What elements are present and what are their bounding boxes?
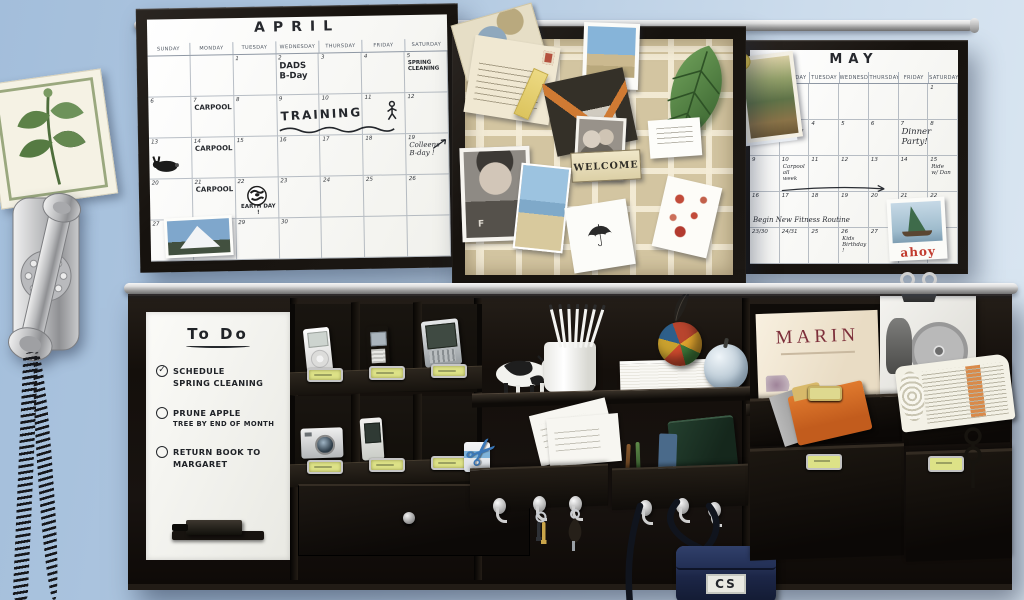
date-number: 5 xyxy=(839,120,868,127)
calendar-cell: 13 xyxy=(869,156,899,192)
key-fob xyxy=(564,508,586,554)
charging-row-top xyxy=(290,304,482,392)
glass-apple xyxy=(704,344,748,390)
date-number: 14 xyxy=(899,156,928,163)
date-number: 20 xyxy=(150,179,192,187)
calendar-cell: 8 xyxy=(928,120,958,156)
weekday-label: THURSDAY xyxy=(319,40,362,53)
slot-divider xyxy=(351,301,360,372)
date-number: 20 xyxy=(869,192,898,199)
calendar-cell: 4 xyxy=(362,52,406,94)
date-number xyxy=(365,216,407,218)
date-number xyxy=(809,84,838,85)
calendar-cell: 5 xyxy=(839,120,869,156)
label-plate xyxy=(431,364,467,378)
date-number: 8 xyxy=(928,120,957,127)
date-number: 23 xyxy=(278,177,320,185)
pinned-sailboat-postcard: ahoy xyxy=(886,197,947,262)
calendar-cell: 15 xyxy=(928,156,958,192)
calendar-cell: 6 xyxy=(148,97,192,139)
slot-divider xyxy=(351,393,360,464)
pda-phone xyxy=(421,318,463,368)
calendar-cell: 4 xyxy=(809,120,839,156)
checkbox-circle: ✓ xyxy=(156,365,168,377)
weekday-label: SATURDAY xyxy=(929,72,958,83)
may-calendar-face: MAY SUNDAYMONDAYTUESDAYWEDNESDAYTHURSDAY… xyxy=(750,50,958,264)
brass-label-plate xyxy=(808,386,842,401)
postcard-image xyxy=(891,201,943,244)
paper-stack xyxy=(620,359,717,392)
april-calendar-board: APRIL SUNDAYMONDAYTUESDAYWEDNESDAYTHURSD… xyxy=(136,3,463,273)
date-number: 23/30 xyxy=(750,228,779,235)
todo-item: ✓SCHEDULESPRING CLEANING xyxy=(156,365,284,390)
date-number: 6 xyxy=(869,120,898,127)
slot-divider xyxy=(413,393,422,464)
display-shelf xyxy=(480,298,748,404)
calendar-cell: 12 xyxy=(405,92,449,134)
pinned-umbrella-card: ☂ xyxy=(564,199,636,274)
april-title: APRIL xyxy=(147,16,447,37)
calendar-cell: 18 xyxy=(363,134,407,176)
date-number: 12 xyxy=(405,92,447,100)
calendar-cell: 30 xyxy=(279,218,323,260)
calendar-cell xyxy=(322,217,366,259)
date-number: 16 xyxy=(750,192,779,199)
calendar-cell: 3 xyxy=(319,53,363,95)
calendar-cell: 14 xyxy=(899,156,929,192)
calendar-cell: 17 xyxy=(780,192,810,228)
date-number: 13 xyxy=(149,138,191,146)
slot-divider xyxy=(413,301,422,372)
date-number: 9 xyxy=(277,95,319,103)
ribbon-pinboard: WELCOMEF☂ xyxy=(452,26,746,288)
sailboat-caption: ahoy xyxy=(889,243,948,260)
todo-text: RETURN BOOK TO xyxy=(173,446,284,458)
calendar-cell: 16 xyxy=(750,192,780,228)
whiteboard-eraser xyxy=(186,520,242,535)
date-number: 15 xyxy=(928,156,957,163)
calendar-cell: 15 xyxy=(235,136,279,178)
pinned-kid-art xyxy=(652,176,723,259)
date-number: 30 xyxy=(279,218,321,226)
date-number xyxy=(148,56,190,58)
envelope xyxy=(546,413,622,467)
date-number: 26 xyxy=(407,174,449,182)
todo-underline xyxy=(186,344,250,348)
date-number: 17 xyxy=(780,192,809,199)
date-number: 24/31 xyxy=(780,228,809,235)
pinned-art-postcard xyxy=(737,51,803,143)
weekday-label: SUNDAY xyxy=(147,43,190,56)
welcome-sign: WELCOME xyxy=(570,149,641,183)
date-number: 18 xyxy=(809,192,838,199)
key-ring xyxy=(528,510,554,552)
postcard-image xyxy=(167,218,231,255)
middle-hanging-rail xyxy=(124,283,1018,294)
label-plate xyxy=(928,456,964,472)
calendar-cell: 22 xyxy=(235,177,279,219)
pinboard-face: WELCOMEF☂ xyxy=(465,39,733,275)
calendar-cell: 9 xyxy=(277,95,321,137)
pinned-letter-card xyxy=(463,35,560,125)
date-number xyxy=(408,215,450,217)
vintage-wall-telephone xyxy=(0,188,98,368)
date-number: 25 xyxy=(809,228,838,235)
calendar-cell: 10 xyxy=(320,94,364,136)
todo-list: ✓SCHEDULESPRING CLEANINGPRUNE APPLETREE … xyxy=(146,365,290,471)
date-number: 26 xyxy=(839,228,868,235)
pinned-business-card xyxy=(648,117,703,159)
date-number xyxy=(899,84,928,85)
calendar-cell: 16 xyxy=(278,136,322,178)
checkbox-circle xyxy=(156,407,168,419)
calendar-cell: 25 xyxy=(809,228,839,264)
date-number: 9 xyxy=(750,156,779,163)
woven-ball xyxy=(658,322,702,366)
weekday-label: THURSDAY xyxy=(869,72,899,83)
calendar-cell: 2 xyxy=(276,54,320,96)
pinned-beach-postcard xyxy=(513,163,572,254)
calendar-cell: 23/30 xyxy=(750,228,780,264)
todo-title: To Do xyxy=(146,325,290,343)
calendar-cell xyxy=(899,84,929,120)
weekday-label: TUESDAY xyxy=(810,72,840,83)
calendar-cell: 8 xyxy=(234,95,278,137)
slider-phone xyxy=(360,417,385,460)
flip-phone xyxy=(366,325,390,368)
date-number: 6 xyxy=(148,97,190,105)
wall-organizer-unit: To Do ✓SCHEDULESPRING CLEANINGPRUNE APPL… xyxy=(128,294,1012,590)
label-plate xyxy=(369,458,405,472)
date-number: 4 xyxy=(362,52,404,60)
pencils xyxy=(550,300,600,348)
date-number: 29 xyxy=(236,218,278,226)
april-calendar-face: APRIL SUNDAYMONDAYTUESDAYWEDNESDAYTHURSD… xyxy=(147,14,451,261)
calendar-cell: 20 xyxy=(150,179,194,221)
weekday-label: WEDNESDAY xyxy=(276,41,319,54)
date-number: 4 xyxy=(809,120,838,127)
checkbox-circle xyxy=(156,446,168,458)
calendar-cell: 21 xyxy=(193,178,237,220)
pinned-mountain-postcard xyxy=(164,215,234,259)
date-number: 15 xyxy=(235,136,277,144)
label-plate xyxy=(307,460,343,474)
date-number: 11 xyxy=(363,93,405,101)
todo-whiteboard: To Do ✓SCHEDULESPRING CLEANINGPRUNE APPL… xyxy=(146,312,290,560)
telephone-cord xyxy=(29,352,61,600)
rolled-newspaper xyxy=(894,353,1015,432)
calendar-cell: 18 xyxy=(809,192,839,228)
date-number: 1 xyxy=(233,54,275,62)
date-number: 17 xyxy=(320,135,362,143)
weekday-label: MONDAY xyxy=(190,42,233,55)
todo-item: RETURN BOOK TOMARGARET xyxy=(156,446,284,471)
calendar-cell: 6 xyxy=(869,120,899,156)
todo-text: SPRING CLEANING xyxy=(173,377,284,389)
todo-text: SCHEDULE xyxy=(173,365,284,377)
weekday-label: WEDNESDAY xyxy=(840,72,870,83)
todo-text: TREE BY END OF MONTH xyxy=(173,419,284,429)
wall-hook xyxy=(492,498,508,526)
calendar-cell: 19 xyxy=(839,192,869,228)
calendar-cell xyxy=(365,216,409,258)
shirt-monogram: F xyxy=(478,219,485,229)
date-number: 13 xyxy=(869,156,898,163)
calendar-cell xyxy=(869,84,899,120)
label-plate xyxy=(369,366,405,380)
date-number: 22 xyxy=(235,177,277,185)
date-number: 3 xyxy=(319,53,361,61)
weekday-label: FRIDAY xyxy=(362,39,405,52)
date-number: 11 xyxy=(809,156,838,163)
ipod xyxy=(303,327,333,373)
calendar-cell: 25 xyxy=(364,175,408,217)
calendar-cell: 7 xyxy=(191,96,235,138)
label-plate xyxy=(806,454,842,470)
date-number: 16 xyxy=(278,136,320,144)
pen xyxy=(636,442,641,470)
postcard-image xyxy=(741,55,798,138)
calendar-cell xyxy=(148,56,192,98)
date-number: 7 xyxy=(191,96,233,104)
date-number: 10 xyxy=(780,156,809,163)
date-number: 14 xyxy=(192,137,234,145)
calendar-cell: 19 xyxy=(406,133,450,175)
date-number xyxy=(839,84,868,85)
calendar-cell: 10 xyxy=(780,156,810,192)
eyeglasses xyxy=(962,424,984,492)
calendar-cell: 17 xyxy=(320,135,364,177)
calendar-cell: 14 xyxy=(192,137,236,179)
calendar-cell: 7 xyxy=(899,120,929,156)
calendar-cell: 11 xyxy=(363,93,407,135)
may-calendar-board: MAY SUNDAYMONDAYTUESDAYWEDNESDAYTHURSDAY… xyxy=(740,40,968,274)
calendar-cell: 13 xyxy=(149,138,193,180)
mail-slot-section: ✂ xyxy=(430,400,748,508)
date-number: 1 xyxy=(928,84,957,91)
date-number xyxy=(190,55,232,57)
calendar-cell: 24/31 xyxy=(780,228,810,264)
calendar-cell: 26 xyxy=(839,228,869,264)
calendar-cell: 9 xyxy=(750,156,780,192)
date-number xyxy=(322,217,364,219)
todo-text: MARGARET xyxy=(173,458,284,470)
pencil-cup xyxy=(544,342,596,392)
date-number: 24 xyxy=(321,176,363,184)
calendar-cell: 29 xyxy=(236,218,280,260)
date-number: 5 xyxy=(405,51,447,59)
calendar-cell xyxy=(408,215,452,257)
digital-camera xyxy=(300,427,343,458)
date-number: 25 xyxy=(364,175,406,183)
weekday-label: TUESDAY xyxy=(233,41,276,54)
calendar-cell: 11 xyxy=(809,156,839,192)
weekday-label: FRIDAY xyxy=(899,72,929,83)
calendar-cell: 1 xyxy=(928,84,958,120)
todo-item: PRUNE APPLETREE BY END OF MONTH xyxy=(156,407,284,429)
calendar-cell: 26 xyxy=(407,174,451,216)
calendar-cell: 12 xyxy=(839,156,869,192)
calendar-cell xyxy=(190,55,234,97)
label-plate xyxy=(307,368,343,382)
weekday-label: SATURDAY xyxy=(405,38,447,51)
calendar-cell xyxy=(809,84,839,120)
calendar-cell xyxy=(839,84,869,120)
date-number: 10 xyxy=(320,94,362,102)
date-number: 18 xyxy=(363,134,405,142)
date-number: 7 xyxy=(899,120,928,127)
photo-scene: APRIL SUNDAYMONDAYTUESDAYWEDNESDAYTHURSD… xyxy=(0,0,1024,600)
date-number xyxy=(869,84,898,85)
drawer-knob xyxy=(403,512,415,524)
calendar-cell: 23 xyxy=(278,177,322,219)
date-number: 19 xyxy=(839,192,868,199)
date-number: 8 xyxy=(234,95,276,103)
date-number: 21 xyxy=(193,178,235,186)
calendar-cell: 24 xyxy=(321,176,365,218)
bag-monogram: CS xyxy=(706,574,746,594)
calendar-cell: 5 xyxy=(405,51,449,93)
date-number: 2 xyxy=(276,54,318,62)
calendar-cell: 1 xyxy=(233,54,277,96)
todo-text: PRUNE APPLE xyxy=(173,407,284,419)
date-number: 19 xyxy=(406,133,448,141)
date-number: 12 xyxy=(839,156,868,163)
